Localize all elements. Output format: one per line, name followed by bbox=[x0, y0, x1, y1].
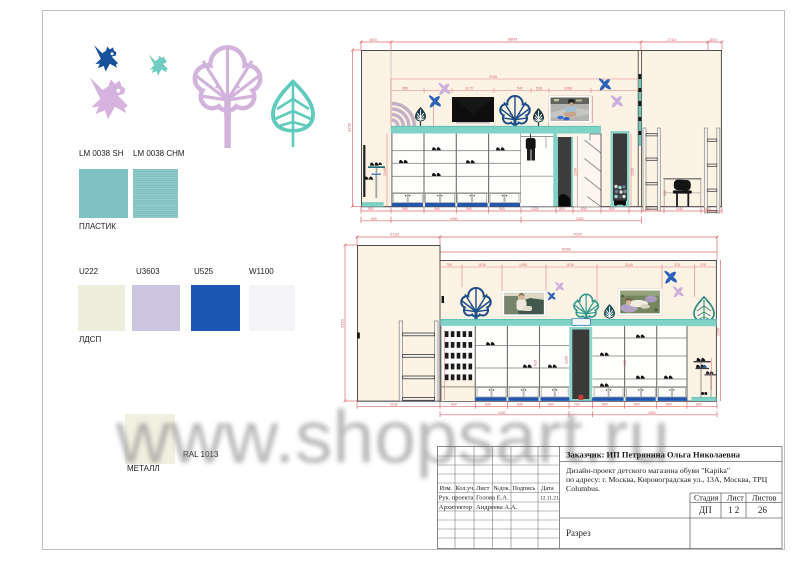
svg-text:Голова Е.А.: Голова Е.А. bbox=[476, 495, 509, 502]
svg-text:Подпись: Подпись bbox=[513, 485, 536, 492]
svg-text:Кол.уч.: Кол.уч. bbox=[456, 485, 476, 492]
svg-text:26: 26 bbox=[758, 505, 768, 515]
svg-text:Лист: Лист bbox=[727, 494, 744, 503]
svg-text:Дизайн-проект детского магазин: Дизайн-проект детского магазина обуви "K… bbox=[566, 466, 730, 475]
svg-text:Листов: Листов bbox=[752, 494, 777, 503]
svg-text:1 2: 1 2 bbox=[728, 505, 739, 515]
svg-text:ДП: ДП bbox=[699, 505, 712, 515]
svg-text:Columbus.: Columbus. bbox=[566, 484, 600, 493]
svg-text:Дата: Дата bbox=[541, 485, 554, 492]
svg-text:Андреева А.А.: Андреева А.А. bbox=[476, 504, 518, 511]
svg-text:Архитектор: Архитектор bbox=[439, 504, 473, 511]
svg-text:12.11.21.: 12.11.21. bbox=[540, 496, 560, 502]
svg-text:по адресу: г. Москва, Кировогр: по адресу: г. Москва, Кировоградская ул.… bbox=[566, 475, 768, 484]
svg-text:Изм.: Изм. bbox=[440, 485, 453, 492]
svg-text:Лист: Лист bbox=[476, 485, 490, 492]
svg-text:Разрез: Разрез bbox=[566, 528, 591, 538]
svg-text:Заказчик: ИП Петрянина Ольга: Заказчик: ИП Петрянина Ольга Николаевна bbox=[566, 450, 741, 460]
svg-text:Рук. проекта: Рук. проекта bbox=[439, 495, 474, 502]
svg-text:№док.: №док. bbox=[494, 485, 511, 492]
svg-text:Стадия: Стадия bbox=[694, 494, 719, 503]
